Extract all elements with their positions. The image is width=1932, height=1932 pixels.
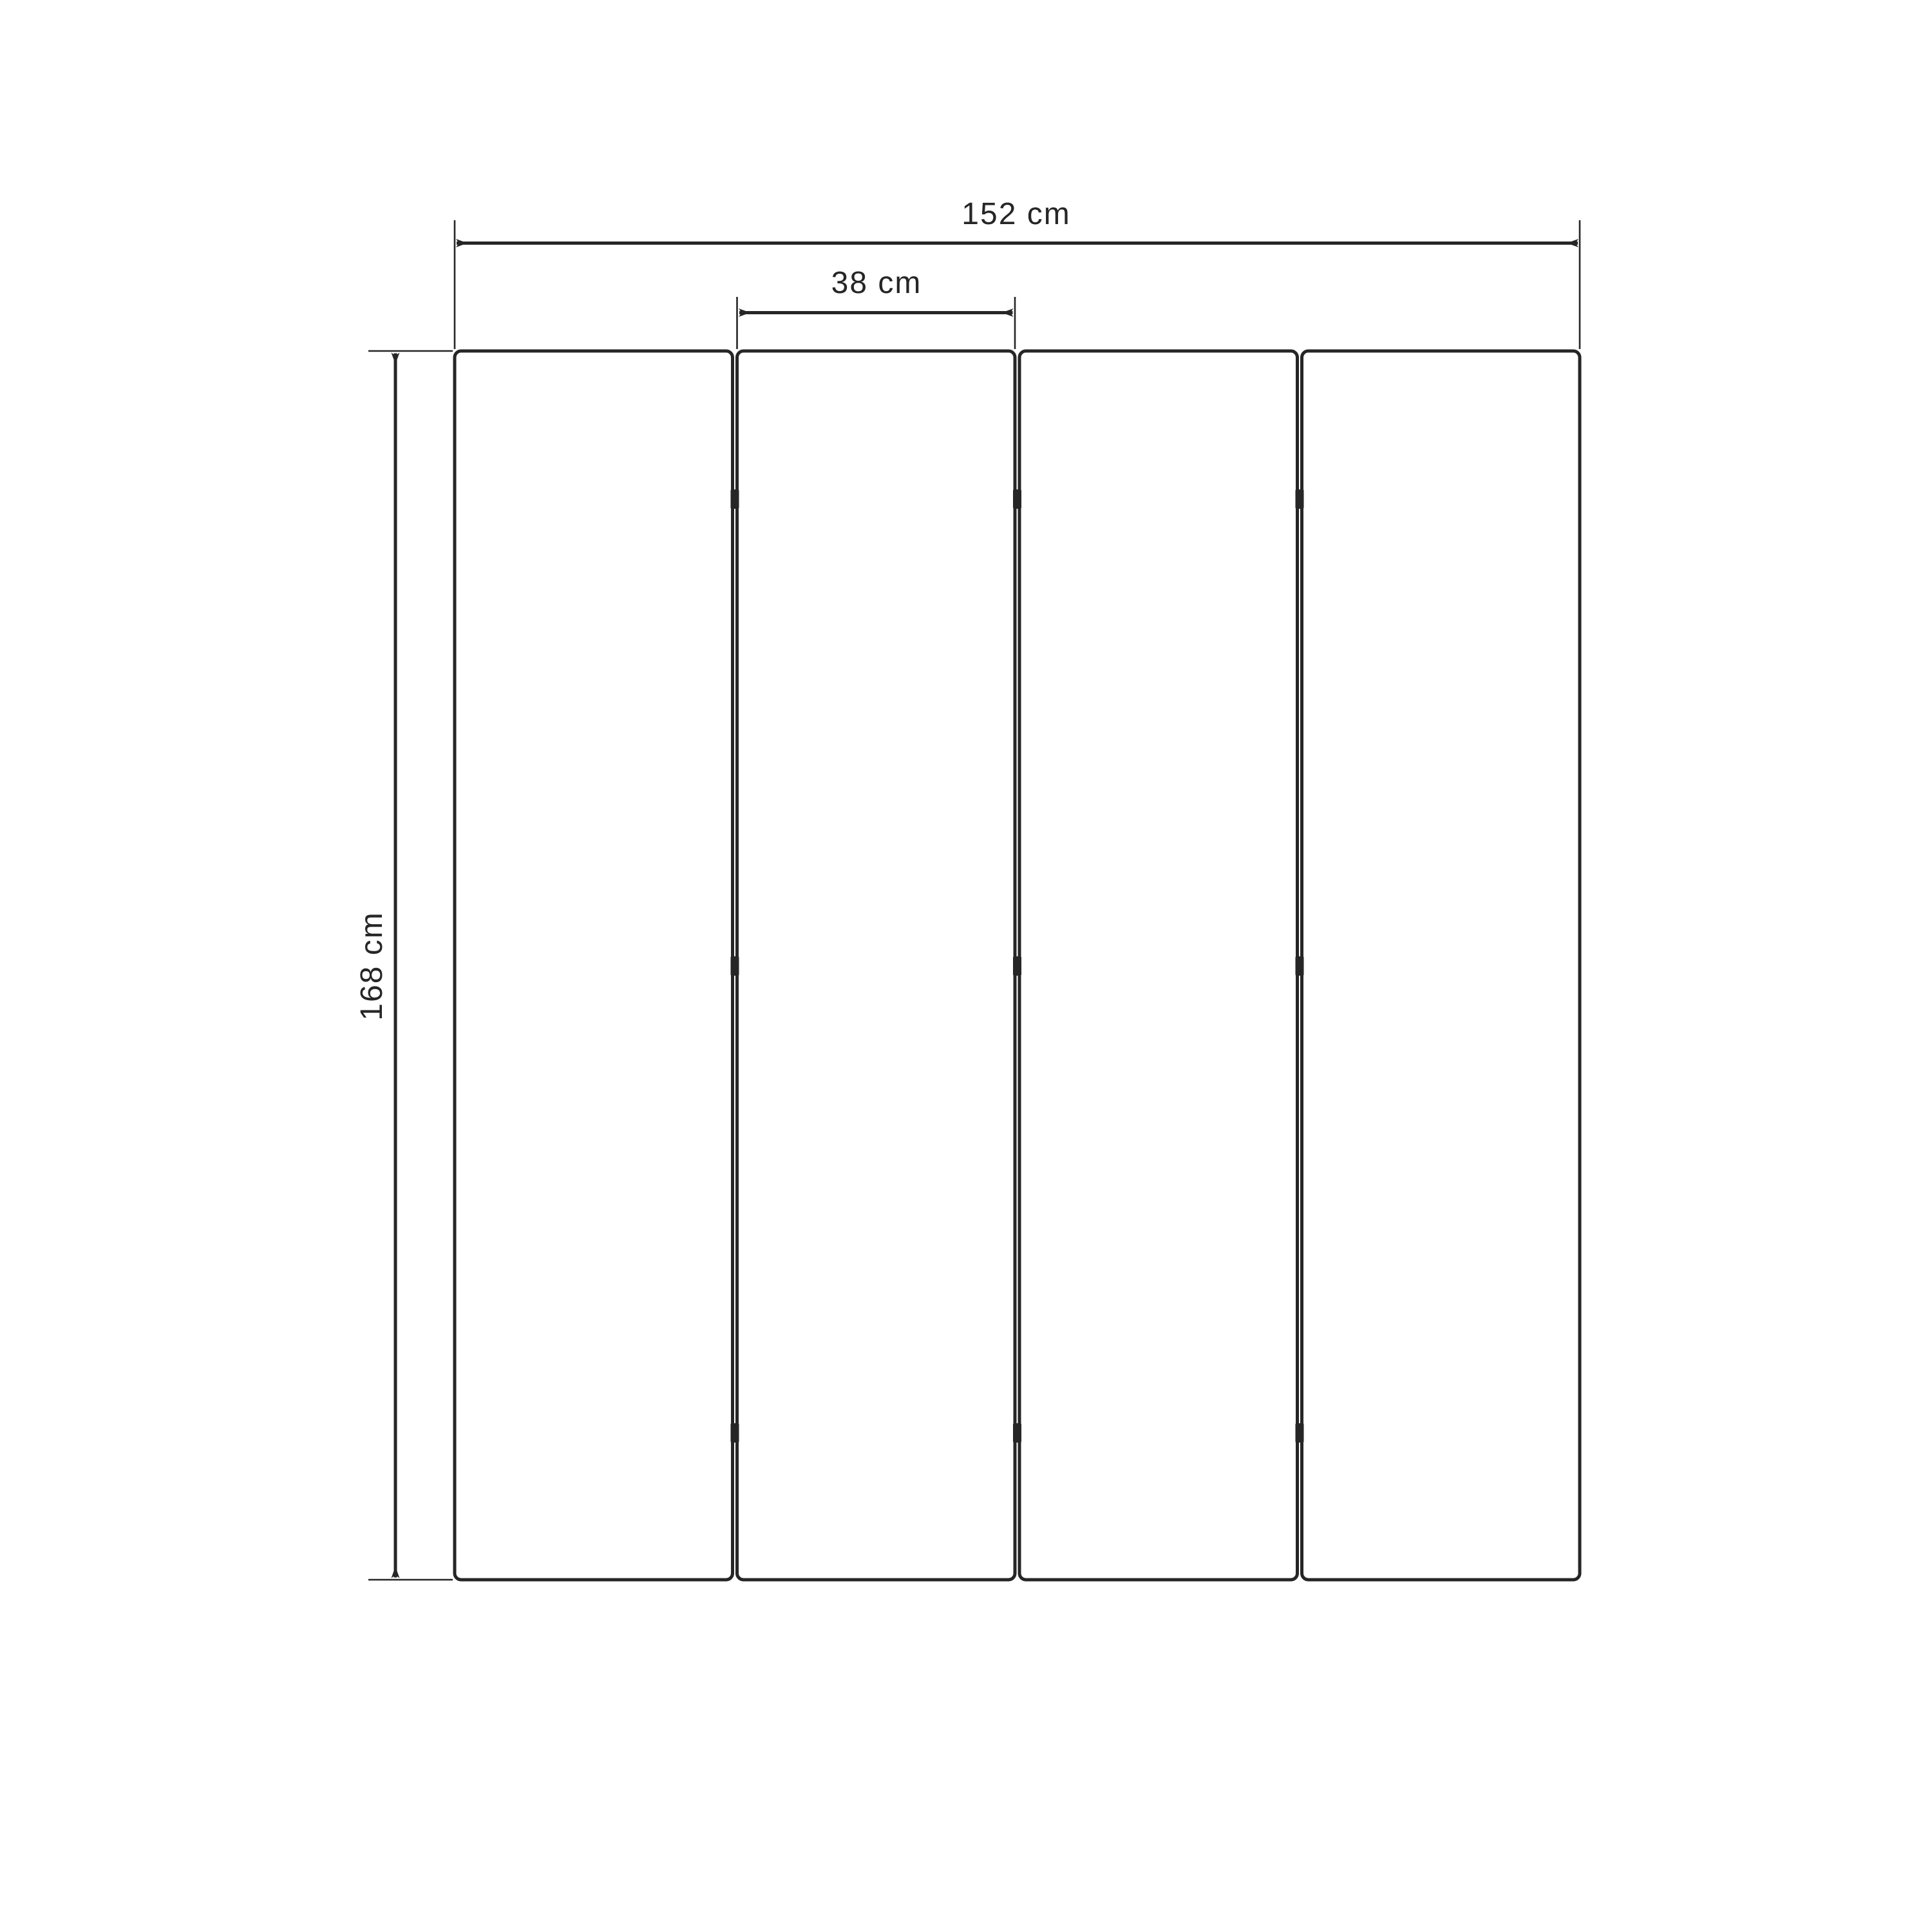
height-dimension: 168 cm [355, 351, 453, 1580]
hinge [1296, 489, 1304, 509]
hinge [1013, 956, 1021, 976]
panel-2 [737, 351, 1016, 1580]
hinge [1296, 956, 1304, 976]
hinge [731, 489, 739, 509]
hinge [1296, 1423, 1304, 1443]
folding-screen [455, 351, 1580, 1580]
dimension-diagram: 152 cm 38 cm 168 cm [0, 0, 1932, 1932]
panel-4 [1302, 351, 1580, 1580]
hinge [1013, 1423, 1021, 1443]
total-width-label: 152 cm [961, 197, 1070, 231]
hinge [1013, 489, 1021, 509]
total-width-dimension: 152 cm [455, 197, 1580, 349]
panel-width-label: 38 cm [831, 266, 922, 300]
panel-1 [455, 351, 733, 1580]
height-label: 168 cm [355, 911, 389, 1020]
panel-3 [1019, 351, 1298, 1580]
panel-width-dimension: 38 cm [737, 266, 1016, 349]
hinge [731, 1423, 739, 1443]
hinge [731, 956, 739, 976]
